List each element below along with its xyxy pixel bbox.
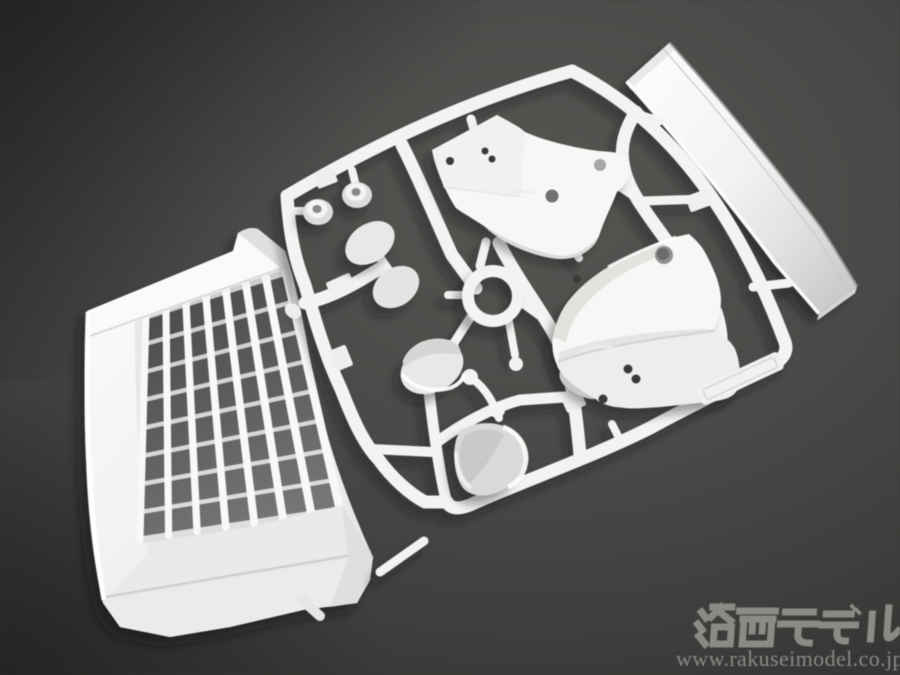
svg-text:www.rakuseimodel.co.jp: www.rakuseimodel.co.jp <box>676 646 900 671</box>
